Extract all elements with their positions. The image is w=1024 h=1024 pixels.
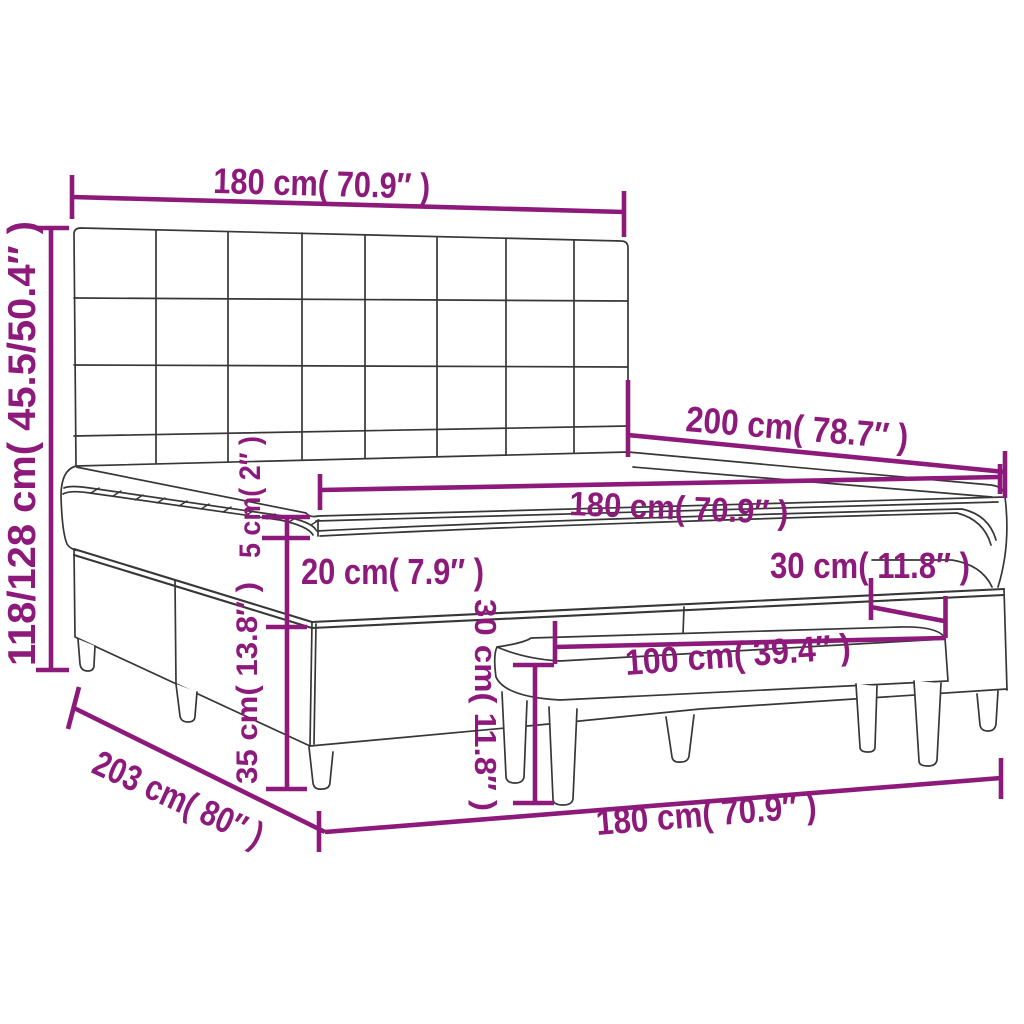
svg-text:118/128 cm( 45.5/50.4″ ): 118/128 cm( 45.5/50.4″ ) — [1, 221, 44, 666]
svg-text:180 cm( 70.9″ ): 180 cm( 70.9″ ) — [213, 160, 431, 207]
svg-text:35 cm( 13.8″ ): 35 cm( 13.8″ ) — [231, 582, 264, 784]
svg-text:20 cm( 7.9″ ): 20 cm( 7.9″ ) — [301, 551, 484, 592]
svg-text:5 cm( 2″ ): 5 cm( 2″ ) — [234, 436, 267, 558]
svg-text:30 cm( 11.8″ ): 30 cm( 11.8″ ) — [468, 599, 503, 811]
svg-text:30 cm( 11.8″ ): 30 cm( 11.8″ ) — [770, 545, 970, 586]
